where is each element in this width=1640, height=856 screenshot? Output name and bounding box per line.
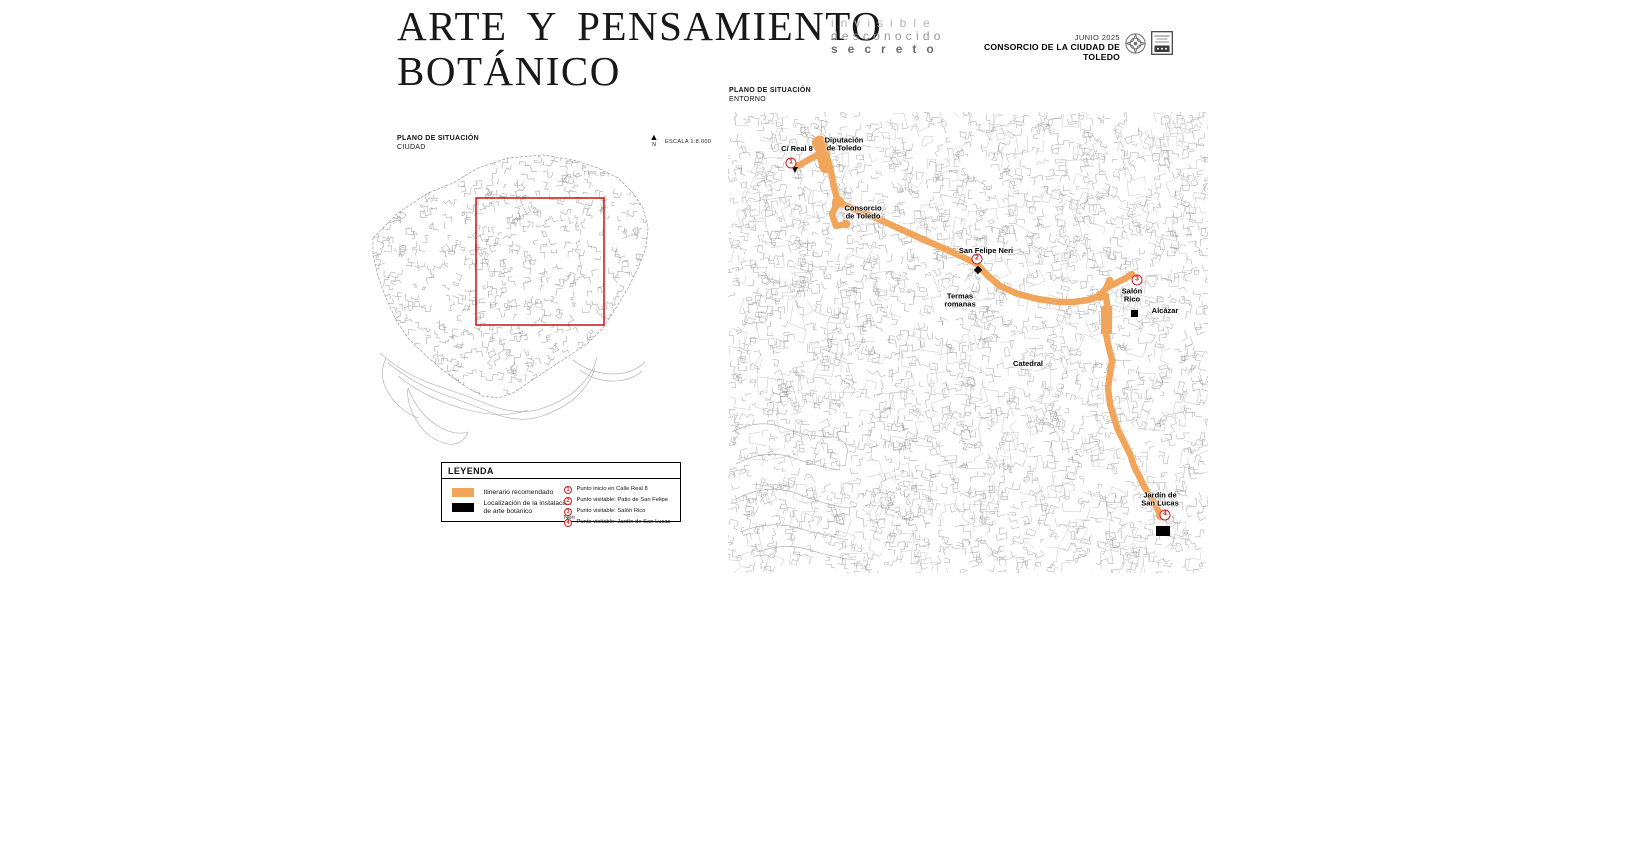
page-title-line1: ARTE Y PENSAMIENTO — [397, 4, 882, 49]
legend-title: LEYENDA — [442, 463, 680, 479]
point-4-label: Punto visitable: Jardín de San Lucas — [576, 519, 670, 525]
map-marker-3: 3 — [1132, 275, 1143, 286]
area-plan-title: PLANO DE SITUACIÓN — [729, 87, 811, 96]
map-label-sanfelipe: San Felipe Neri — [959, 247, 1013, 255]
legend-route-label: Itinerario recomendado — [483, 489, 553, 497]
area-situation-map: C/ Real 8 Diputación de Toledo Consorcio… — [728, 112, 1208, 573]
header-org-block: JUNIO 2025 CONSORCIO DE LA CIUDAD DE TOL… — [950, 33, 1120, 62]
area-plan-subtitle: ENTORNO — [729, 96, 811, 105]
map-marker-1: 1 — [786, 158, 797, 169]
legend-box: LEYENDA Itinerario recomendado Localizac… — [441, 462, 681, 522]
installation-swatch — [452, 503, 474, 512]
header-organization: CONSORCIO DE LA CIUDAD DE TOLEDO — [950, 42, 1120, 62]
map-marker-2: 2 — [972, 254, 983, 265]
point-4-badge: 4 — [564, 519, 572, 527]
legend-item-installation: Localización de la instalación de arte b… — [452, 499, 572, 517]
map-label-catedral: Catedral — [1013, 360, 1043, 368]
route-swatch — [452, 488, 474, 497]
city-outline — [373, 155, 648, 398]
map-label-sanlucas: Jardín de San Lucas — [1141, 492, 1179, 509]
area-map-canvas — [728, 112, 1208, 573]
legend-installation-label: Localización de la instalación de arte b… — [483, 500, 571, 515]
map-label-termas: Termas romanas — [944, 293, 975, 310]
map-label-diputacion: Diputación de Toledo — [825, 137, 864, 154]
consorcio-shield-icon — [1151, 31, 1173, 60]
north-arrow-icon: ▲N — [648, 133, 660, 149]
legend-point-4: 4 Punto visitable: Jardín de San Lucas — [564, 514, 671, 532]
header-date: JUNIO 2025 — [950, 33, 1120, 42]
map-marker-4: 4 — [1160, 510, 1171, 521]
map-label-alcazar: Alcázar — [1152, 307, 1179, 315]
map-label-real8: C/ Real 8 — [781, 145, 813, 153]
scale-label: ESCALA 1:8.000 — [665, 139, 711, 145]
city-situation-map — [368, 148, 668, 448]
city-plan-title: PLANO DE SITUACIÓN — [397, 135, 479, 144]
page-title: ARTE Y PENSAMIENTO BOTÁNICO — [397, 4, 882, 94]
map-label-consorcio: Consorcio de Toledo — [844, 205, 881, 222]
brand-wordmark: invisible desconocido secreto — [831, 17, 945, 56]
brand-line-secreto: secreto — [831, 43, 945, 56]
area-plan-caption: PLANO DE SITUACIÓN ENTORNO — [729, 87, 811, 104]
city-map-canvas — [368, 148, 668, 448]
rosette-seal-icon — [1125, 33, 1146, 59]
map-label-salonrico: Salón Rico — [1122, 288, 1142, 305]
